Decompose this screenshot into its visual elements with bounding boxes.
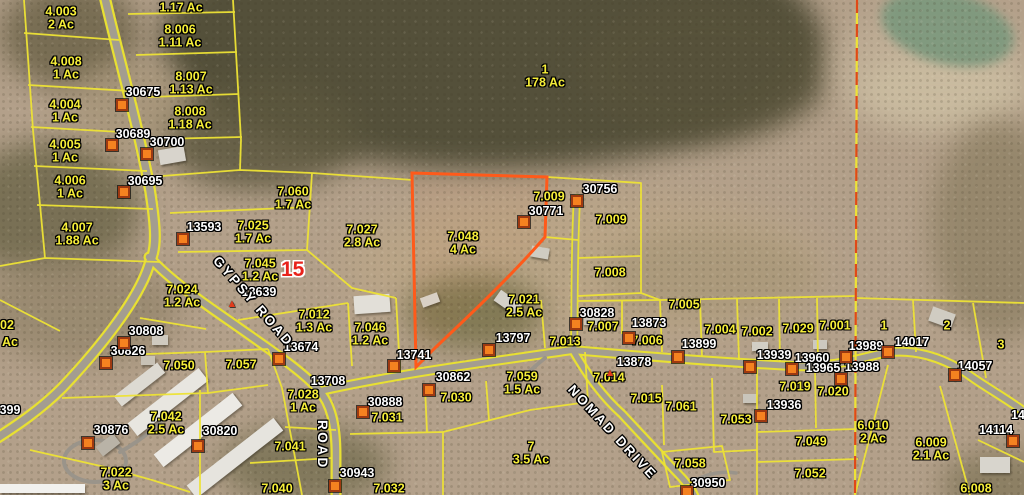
parcel-label: 7.049: [795, 436, 826, 449]
parcel-label: 7.004: [704, 324, 735, 337]
house-marker[interactable]: [1007, 435, 1019, 447]
parcel-area-label: 2.1 Ac: [913, 450, 949, 463]
address-label: 30695: [128, 174, 163, 188]
address-label: 30756: [583, 182, 618, 196]
parcel-area-label: 1.88 Ac: [55, 235, 98, 248]
house-marker[interactable]: [755, 410, 767, 422]
house-marker[interactable]: [177, 233, 189, 245]
parcel-area-label: 1.2 Ac: [242, 271, 278, 284]
address-label: 13797: [496, 331, 531, 345]
address-label: 30888: [368, 395, 403, 409]
address-label: 13939: [757, 348, 792, 362]
house-marker[interactable]: [570, 318, 582, 330]
parcel-label: 7.057: [225, 359, 256, 372]
parcel-label: 7.001: [819, 320, 850, 333]
house-marker[interactable]: [518, 216, 530, 228]
house-marker[interactable]: [118, 186, 130, 198]
parcel-area-label: 3.5 Ac: [513, 454, 549, 467]
partial-label: 14: [1011, 408, 1024, 422]
parcel-area-label: 1.11 Ac: [159, 37, 202, 50]
address-label: 14057: [958, 359, 993, 373]
house-marker[interactable]: [100, 357, 112, 369]
address-label: 14017: [895, 335, 930, 349]
parcel-area-label: 1.7 Ac: [235, 233, 271, 246]
address-label: 30808: [129, 324, 164, 338]
parcel-area-label: 2 Ac: [860, 433, 886, 446]
parcel-label: 7.015: [630, 393, 661, 406]
parcel-area-label: 1 Ac: [52, 152, 78, 165]
parcel-area-label: 1 Ac: [52, 112, 78, 125]
address-label: 30828: [580, 306, 615, 320]
parcel-area-label: 1 Ac: [57, 188, 83, 201]
parcel-label: 1: [881, 320, 888, 333]
partial-label: 399: [0, 403, 20, 417]
parcel-area-label: 1.17 Ac: [159, 2, 202, 15]
house-marker[interactable]: [949, 369, 961, 381]
parcel-label: 7.008: [594, 267, 625, 280]
parcel-label: 7.050: [163, 360, 194, 373]
address-label: 30675: [126, 85, 161, 99]
map-canvas[interactable]: GYPSY ROAD ROAD NOMAD DRIVE 15 4.0032 Ac…: [0, 0, 1024, 495]
parcel-area-label: 3 Ac: [103, 480, 129, 493]
house-marker[interactable]: [623, 332, 635, 344]
parcel-label: 7.002: [741, 326, 772, 339]
parcel-label: 2: [944, 320, 951, 333]
house-marker[interactable]: [106, 139, 118, 151]
address-label: 13989: [849, 339, 884, 353]
parcel-area-label: 178 Ac: [525, 77, 565, 90]
parcel-label: 7.007: [587, 321, 618, 334]
house-marker[interactable]: [357, 406, 369, 418]
address-label: 13741: [397, 348, 432, 362]
parcel-area-label: 2.8 Ac: [344, 237, 380, 250]
house-marker-triangle[interactable]: ▲: [605, 367, 616, 379]
house-marker[interactable]: [882, 346, 894, 358]
address-label: 30862: [436, 370, 471, 384]
address-label: 13708: [311, 374, 346, 388]
parcel-label: 6.008: [960, 483, 991, 495]
address-label: 30700: [150, 135, 185, 149]
house-marker[interactable]: [672, 351, 684, 363]
address-label: 30689: [116, 127, 151, 141]
address-label: 13878: [617, 355, 652, 369]
address-label: 13593: [187, 220, 222, 234]
house-marker-triangle[interactable]: ▲: [227, 298, 238, 310]
parcel-label: 7.032: [373, 483, 404, 495]
address-label: 13873: [632, 316, 667, 330]
parcel-label: 7.005: [668, 299, 699, 312]
parcel-label: 7.058: [674, 458, 705, 471]
parcel-area-label: 1.7 Ac: [275, 199, 311, 212]
parcel-label: 7.031: [371, 412, 402, 425]
address-label: 13936: [767, 398, 802, 412]
address-label: 30876: [94, 423, 129, 437]
address-label: 30771: [529, 204, 564, 218]
parcel-area-label: 1.3 Ac: [296, 322, 332, 335]
lot-number-overlay: 15: [281, 258, 304, 282]
parcel-label: 7.013: [549, 336, 580, 349]
house-marker[interactable]: [388, 360, 400, 372]
partial-label: 02: [0, 318, 14, 332]
parcel-label: 7.019: [779, 381, 810, 394]
house-marker[interactable]: [681, 486, 693, 495]
house-marker[interactable]: [483, 344, 495, 356]
parcel-area-label: 1.18 Ac: [168, 119, 211, 132]
house-marker[interactable]: [786, 363, 798, 375]
parcel-label: 7.030: [440, 392, 471, 405]
parcel-area-label: 2 Ac: [48, 19, 74, 32]
parcel-label: 7.053: [720, 414, 751, 427]
parcel-area-label: 1.2 Ac: [164, 297, 200, 310]
house-marker[interactable]: [116, 99, 128, 111]
house-marker[interactable]: [118, 337, 130, 349]
address-label: 30950: [691, 476, 726, 490]
parcel-area-label: 4 Ac: [450, 244, 476, 257]
house-marker[interactable]: [82, 437, 94, 449]
house-marker[interactable]: [329, 480, 341, 492]
road-label-road: ROAD: [315, 420, 330, 470]
parcel-area-label: 2.5 Ac: [506, 307, 542, 320]
parcel-area-label: 1 Ac: [290, 402, 316, 415]
house-marker[interactable]: [141, 148, 153, 160]
address-label: 13899: [682, 337, 717, 351]
parcel-label: 7.041: [274, 441, 305, 454]
parcel-label: 7.061: [665, 401, 696, 414]
address-label: 30820: [203, 424, 238, 438]
parcel-area-label: 1 Ac: [53, 69, 79, 82]
house-marker[interactable]: [423, 384, 435, 396]
house-marker[interactable]: [840, 351, 852, 363]
parcel-area-label: 1.2 Ac: [352, 335, 388, 348]
parcel-label: 7.040: [261, 483, 292, 495]
parcel-label: 7.006: [631, 335, 662, 348]
parcel-label: 7.009: [595, 214, 626, 227]
address-label: 30943: [340, 466, 375, 480]
parcel-label: 7.052: [794, 468, 825, 481]
parcel-label: 7.029: [782, 323, 813, 336]
parcel-label: 7.020: [817, 386, 848, 399]
house-marker[interactable]: [744, 361, 756, 373]
parcel-label: 3: [998, 339, 1005, 352]
parcel-area-label: 2.5 Ac: [148, 424, 184, 437]
parcel-area-label: 1.5 Ac: [504, 384, 540, 397]
parcel-label: 7.009: [533, 191, 564, 204]
house-marker[interactable]: [571, 195, 583, 207]
house-marker[interactable]: [835, 373, 847, 385]
house-marker[interactable]: [273, 353, 285, 365]
partial-label: Ac: [2, 335, 18, 349]
house-marker[interactable]: [192, 440, 204, 452]
parcel-area-label: 1.13 Ac: [169, 84, 212, 97]
